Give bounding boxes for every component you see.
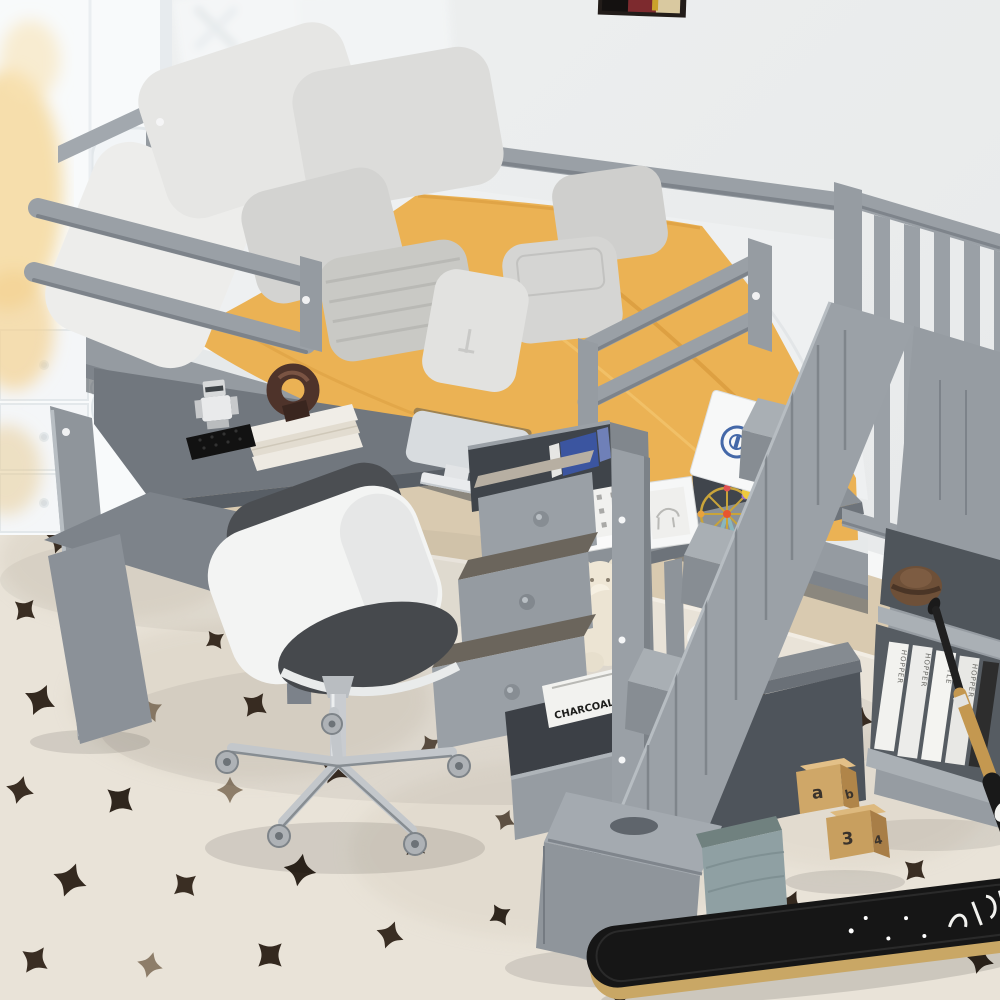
product-photo: CHARCOAL: [0, 0, 1000, 1000]
guard-rail-mid-post: [300, 256, 322, 352]
block-number-3: 3: [841, 829, 855, 850]
wall-art-frame: [598, 0, 687, 18]
block-letter-a: a: [811, 783, 825, 804]
